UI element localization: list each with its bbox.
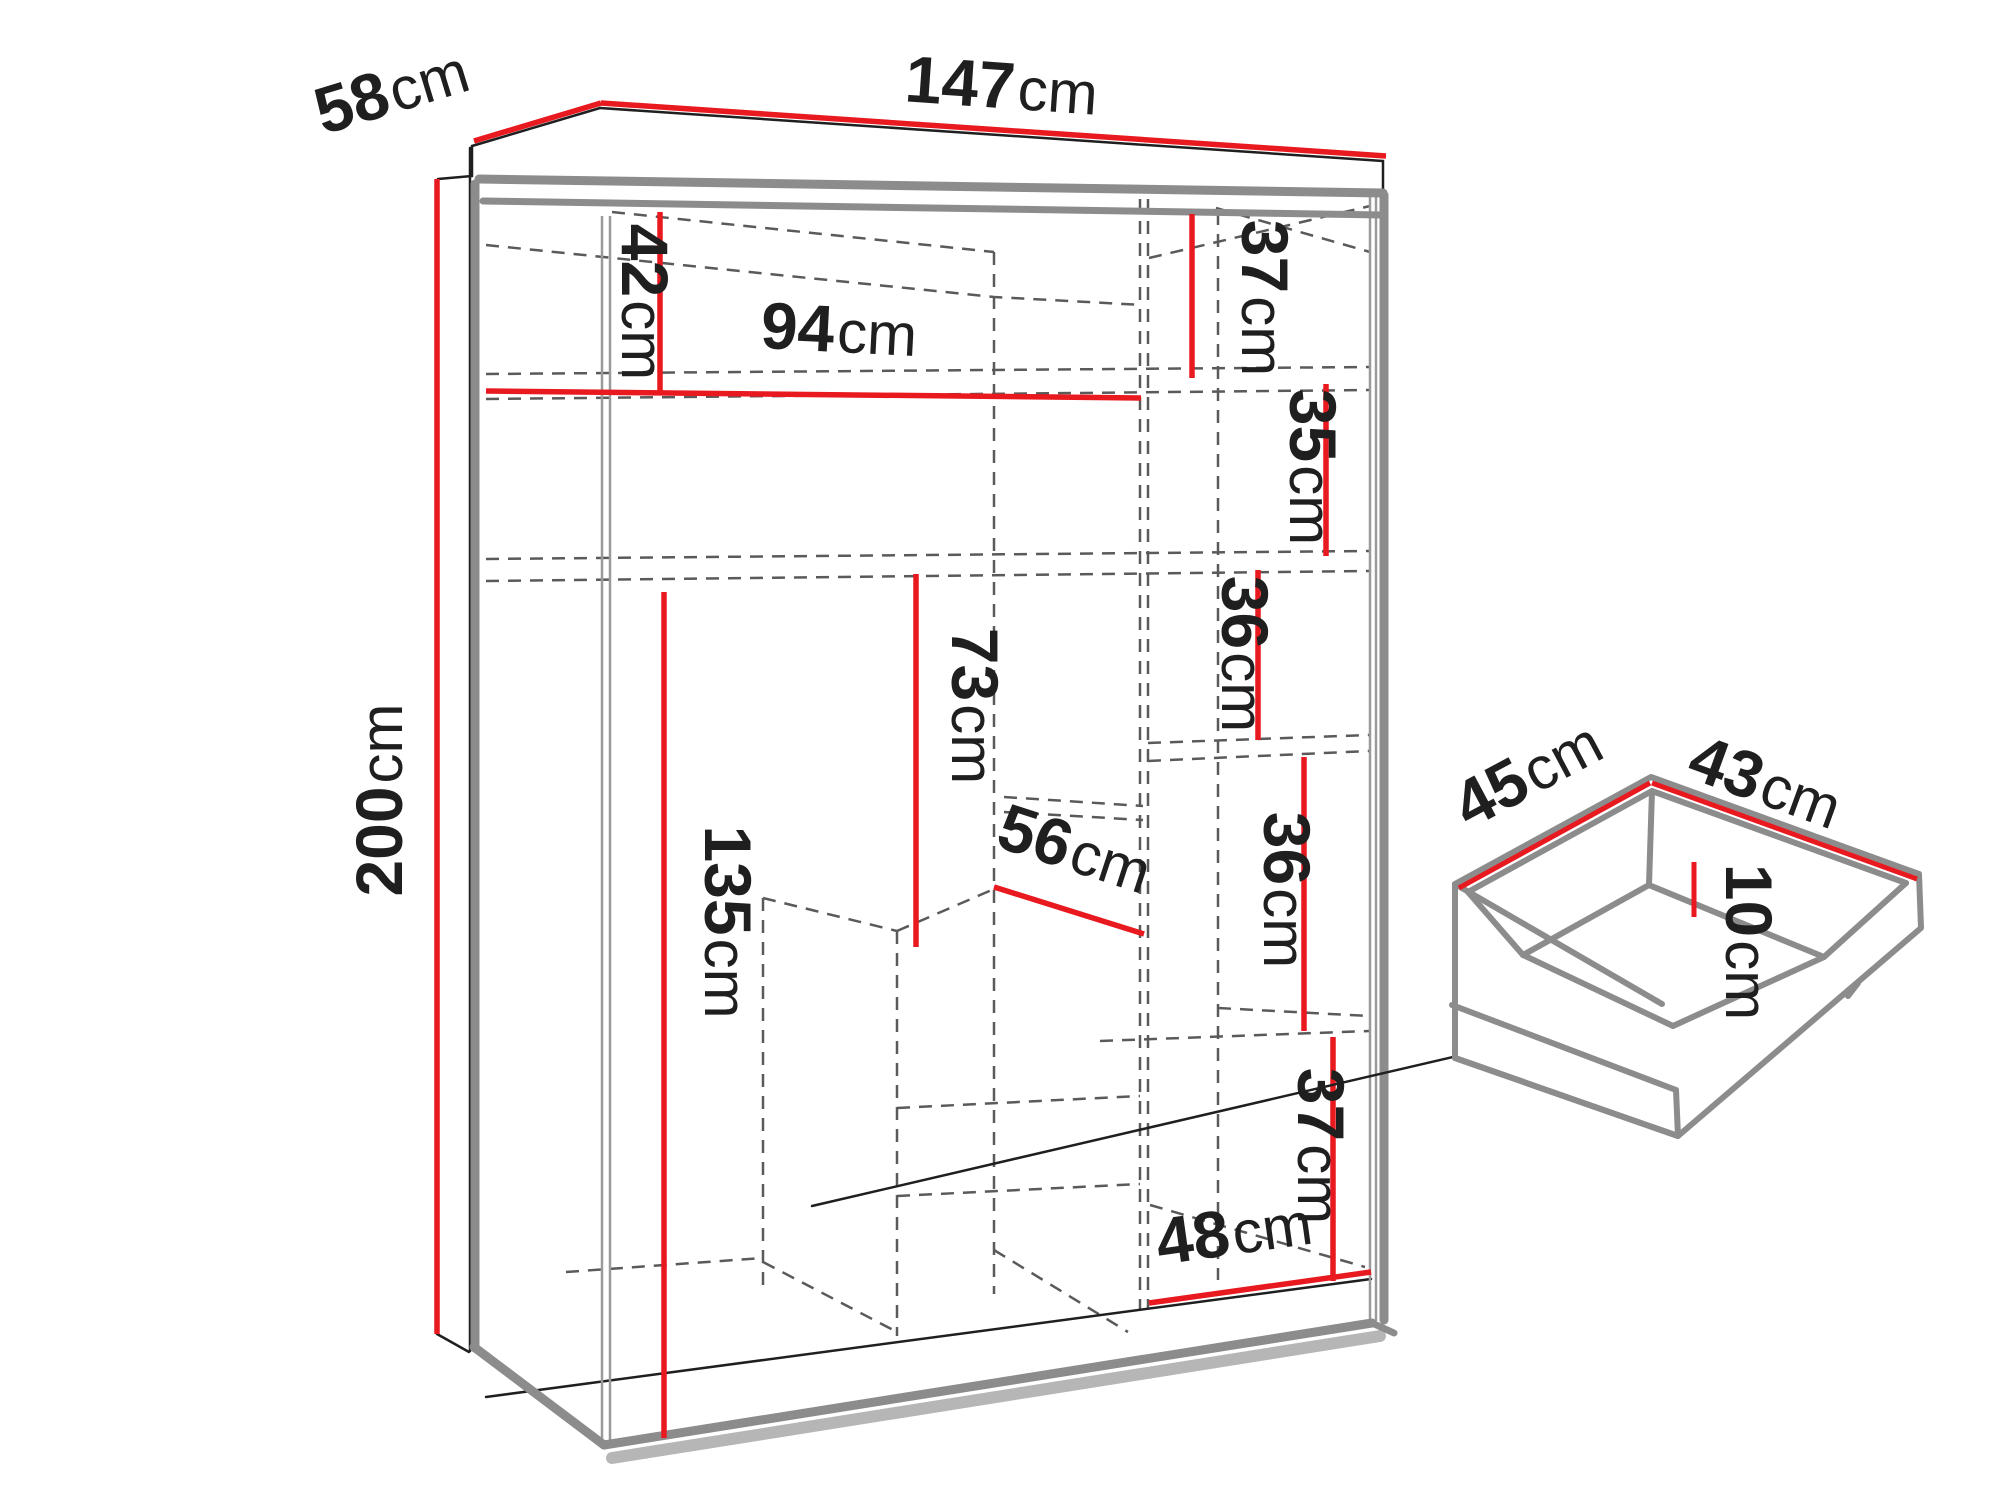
diagram-page: 58cm 147cm 200cm 42cm 94cm 73cm 135cm 56… — [0, 0, 2000, 1500]
drawer-detail-inset — [1452, 777, 1921, 1136]
dim-label-94cm: 94cm — [759, 288, 919, 370]
dim-label-42cm: 42cm — [608, 224, 682, 380]
left-dim-connector-step — [438, 146, 472, 179]
shelf2-back-edge — [486, 551, 1369, 559]
dim-label-depth-58cm: 58cm — [306, 32, 477, 148]
front-top-rail — [479, 179, 1383, 193]
dim-label-width-147cm: 147cm — [903, 41, 1101, 128]
dim-label-height-200cm: 200cm — [342, 703, 416, 896]
dim-line-depth-58 — [474, 103, 601, 141]
dim-label-36cm-lower: 36cm — [1250, 812, 1324, 968]
drawer-unit-bottom-left-diagonal — [763, 1262, 897, 1332]
bottom-front-edge — [604, 1323, 1372, 1445]
wardrobe-dimension-drawing: 58cm 147cm 200cm 42cm 94cm 73cm 135cm 56… — [0, 0, 2000, 1500]
dim-label-37cm-top: 37cm — [1228, 220, 1302, 376]
dim-label-35cm: 35cm — [1276, 389, 1350, 545]
dim-line-48 — [1149, 1272, 1371, 1303]
drawer-callout-leader-line — [812, 1040, 1526, 1206]
height-dim-bottom-tick — [437, 1334, 469, 1352]
drawer-apex-inner-edge — [1649, 791, 1652, 885]
dim-label-56cm: 56cm — [989, 789, 1161, 908]
top-left-depth-edge — [472, 108, 600, 146]
drawer-divider-1 — [897, 1096, 1140, 1108]
dim-label-drawer-10cm: 10cm — [1712, 864, 1786, 1020]
right-shelf3-front-edge — [1148, 751, 1369, 761]
drawer-front-panel-right-edge — [1676, 1090, 1678, 1136]
bottom-plinth-top-edge — [486, 1279, 1371, 1397]
dim-label-48cm: 48cm — [1151, 1184, 1316, 1279]
dim-label-73cm: 73cm — [938, 628, 1012, 784]
drawer-divider-2 — [897, 1184, 1140, 1196]
drawer-unit-top-left-edge — [763, 898, 897, 931]
bottom-shadow — [612, 1336, 1380, 1458]
dim-label-135cm: 135cm — [691, 825, 765, 1018]
right-shelf4-back-edge — [1218, 1008, 1369, 1016]
interior-drawer-unit-dashed — [566, 889, 1140, 1336]
drawer-unit-top-back-edge — [897, 889, 994, 931]
dim-label-36cm-upper: 36cm — [1208, 576, 1282, 732]
